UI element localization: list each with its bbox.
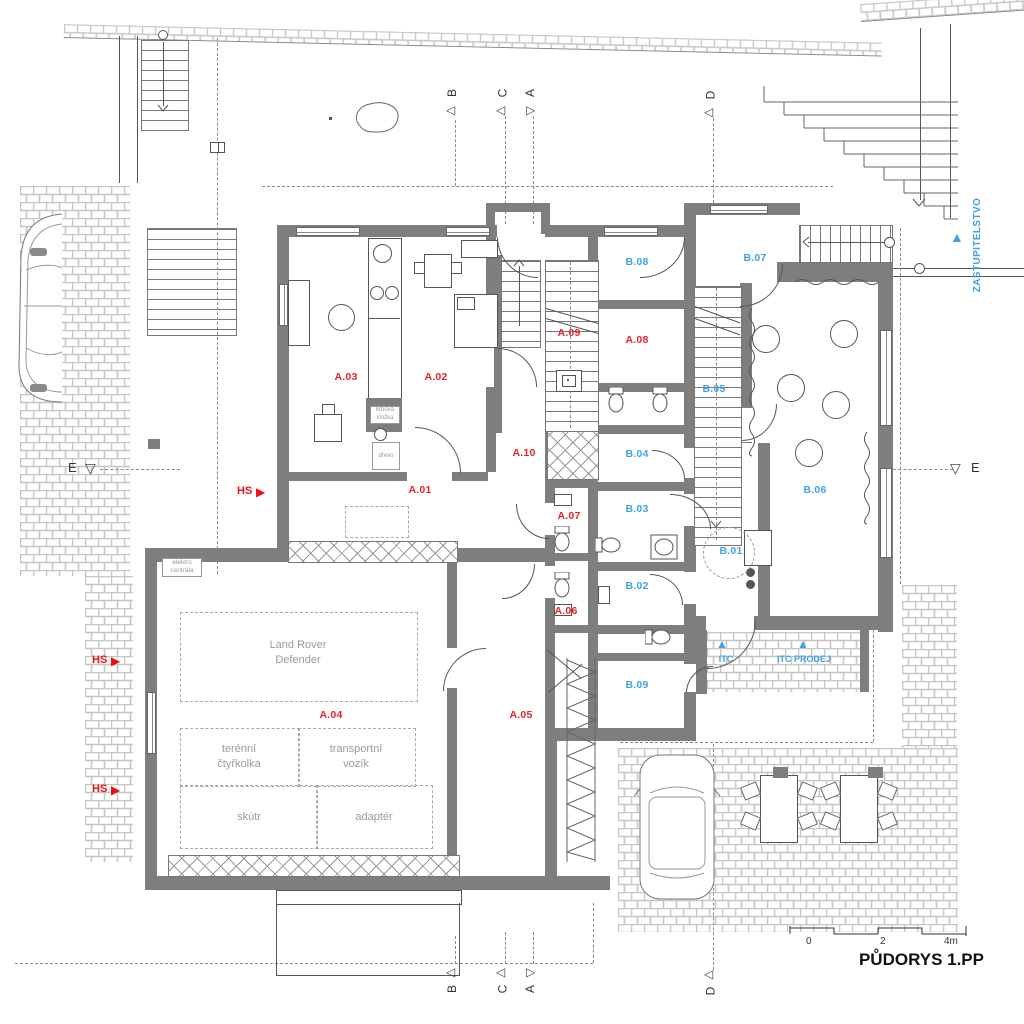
section-triangle-icon: ◁ xyxy=(496,104,505,116)
retaining-zigzag xyxy=(564,658,598,862)
room-label-a10: A.10 xyxy=(504,447,544,459)
toilet xyxy=(650,387,670,413)
room-label-b01: B.01 xyxy=(711,545,751,557)
window xyxy=(296,227,360,236)
window xyxy=(604,227,658,236)
section-triangle-icon: ▷ xyxy=(526,104,535,116)
staircase-b07 xyxy=(799,225,893,263)
car-side-parked xyxy=(12,208,64,406)
flue-circle xyxy=(374,428,387,441)
stair-newel-circle xyxy=(158,30,168,40)
ramp-line xyxy=(276,975,460,976)
paving-right-strip xyxy=(902,585,957,750)
arrow-down-icon xyxy=(710,520,722,528)
wall-segment xyxy=(277,472,407,481)
room-label-a02: A.02 xyxy=(416,371,456,383)
wall-segment xyxy=(452,472,488,481)
room-label-a06: A.06 xyxy=(546,605,586,617)
column-circle xyxy=(777,374,805,402)
section-label-e: E xyxy=(68,460,77,475)
post xyxy=(148,439,160,449)
window xyxy=(880,330,892,426)
section-label-a: A xyxy=(523,89,537,97)
shaft-hatch xyxy=(547,427,599,480)
wall-segment xyxy=(588,482,696,491)
toilet xyxy=(552,526,572,552)
direction-triangle-icon: ▲ xyxy=(797,638,809,650)
toilet xyxy=(552,572,572,598)
section-triangle-icon: ▽ xyxy=(85,461,96,475)
wall-segment xyxy=(145,876,610,890)
section-label-d: D xyxy=(703,987,717,996)
wall-hatch-row xyxy=(288,541,458,563)
section-label-c: C xyxy=(495,985,509,994)
itc-prodej-label: ITC PRODEJ xyxy=(764,654,844,664)
column-circle xyxy=(830,320,858,348)
roof-outline-line xyxy=(620,742,873,743)
hs-arrow-icon: ▶ xyxy=(111,784,120,796)
paving-street-band-ne xyxy=(860,0,1024,22)
hs-marker-label: HS xyxy=(237,485,252,497)
scale-2: 2 xyxy=(880,936,886,947)
kitchen-sink xyxy=(373,244,392,263)
dashed-equipment-box xyxy=(345,506,409,538)
door-arc xyxy=(502,564,535,599)
staircase-cascade xyxy=(762,86,960,222)
room-label-a01: A.01 xyxy=(400,484,440,496)
scale-4m: 4m xyxy=(944,936,958,947)
arrow-down-icon xyxy=(157,104,169,112)
radiator-wave xyxy=(862,432,872,527)
chair xyxy=(414,262,425,274)
column-circle xyxy=(795,439,823,467)
room-label-a08: A.08 xyxy=(617,334,657,346)
washbasin xyxy=(650,534,678,560)
roof-outline-line xyxy=(262,186,833,187)
section-line xyxy=(593,903,594,963)
section-label-d: D xyxy=(703,91,717,100)
post xyxy=(773,767,788,778)
section-label-c: C xyxy=(495,89,509,98)
itc-label: ITC xyxy=(708,654,744,664)
column-circle xyxy=(822,391,850,419)
toilet xyxy=(606,387,626,413)
section-label-e: E xyxy=(971,460,980,475)
chair xyxy=(451,262,462,274)
fireplace-label: krbovávložka xyxy=(370,406,400,424)
direction-triangle-icon: ▲ xyxy=(950,230,964,244)
drain-symbol xyxy=(210,142,225,153)
room-label-b06: B.06 xyxy=(795,484,835,496)
section-triangle-icon: ▽ xyxy=(950,461,961,475)
sofa xyxy=(288,280,310,346)
post xyxy=(868,767,883,778)
toilet xyxy=(645,627,671,647)
room-label-a09: A.09 xyxy=(549,327,589,339)
staircase-street xyxy=(141,40,189,131)
wall-segment xyxy=(860,620,869,692)
stair-direction-line xyxy=(808,242,884,243)
wall-segment xyxy=(545,480,598,488)
garage-door xyxy=(276,890,462,905)
hs-marker-label: HS xyxy=(92,654,107,666)
ramp-line xyxy=(459,903,460,975)
closet xyxy=(461,240,498,258)
room-label-b05: B.05 xyxy=(694,383,734,395)
toilet xyxy=(595,535,621,555)
hs-arrow-icon: ▶ xyxy=(111,655,120,667)
section-line-a xyxy=(533,932,534,964)
door-opening xyxy=(684,572,696,604)
hs-arrow-icon: ▶ xyxy=(256,486,265,498)
wall-segment xyxy=(588,562,696,571)
door-arc xyxy=(516,504,549,539)
section-line-b xyxy=(455,936,456,964)
boulder xyxy=(350,100,402,136)
scooter-label: skútr xyxy=(182,810,316,825)
staircase-a09-flight-down xyxy=(545,260,599,432)
window xyxy=(147,692,156,754)
room-label-a07: A.07 xyxy=(549,510,589,522)
room-label-a05: A.05 xyxy=(501,709,541,721)
hob-burner xyxy=(370,286,384,300)
wall-segment xyxy=(545,553,598,561)
door-arc xyxy=(498,348,537,387)
section-triangle-icon: ◁ xyxy=(496,966,505,978)
wall-segment xyxy=(545,625,598,633)
section-line xyxy=(15,963,593,964)
room-label-b02: B.02 xyxy=(617,580,657,592)
sink xyxy=(598,586,610,604)
adapter-label: adaptér xyxy=(318,810,430,825)
room-label-b04: B.04 xyxy=(617,448,657,460)
table xyxy=(314,414,342,442)
trailer-label: transportnívozík xyxy=(300,742,412,772)
stair-direction-line xyxy=(163,42,164,106)
section-label-a: A xyxy=(523,985,537,993)
door-arc xyxy=(740,264,783,307)
retaining-wall-line xyxy=(137,36,138,183)
drawing-title: PŮDORYS 1.PP xyxy=(788,950,984,970)
sink xyxy=(554,494,572,506)
section-triangle-icon: ▷ xyxy=(526,966,535,978)
table xyxy=(840,775,878,843)
stair-walk-line xyxy=(570,262,571,428)
room-label-b07: B.07 xyxy=(735,252,775,264)
window xyxy=(710,205,768,214)
wall-segment xyxy=(447,688,457,876)
section-line-d xyxy=(713,118,714,203)
section-triangle-icon: ◁ xyxy=(446,966,455,978)
door-arc xyxy=(415,427,461,473)
wall-segment xyxy=(588,383,696,392)
counter-line xyxy=(368,318,400,319)
window xyxy=(446,227,490,236)
wood-label: dřevo xyxy=(372,442,400,470)
vehicle-label: Land RoverDefender xyxy=(208,638,388,668)
section-triangle-icon: ◁ xyxy=(704,106,713,118)
section-label-b: B xyxy=(445,985,459,993)
room-label-a03: A.03 xyxy=(326,371,366,383)
hook-dot xyxy=(746,580,755,589)
room-label-a04: A.04 xyxy=(311,709,351,721)
hob-burner xyxy=(385,286,399,300)
stair-direction-line xyxy=(519,266,520,326)
wall-segment xyxy=(277,225,289,477)
zastupitelstvo-label: ZASTUPITELSTVO xyxy=(967,190,981,300)
section-label-b: B xyxy=(445,89,459,97)
section-line-e xyxy=(893,469,953,470)
site-dot xyxy=(329,117,332,120)
section-line xyxy=(217,38,218,574)
car-top-view xyxy=(634,751,722,903)
dumbwaiter-shaft xyxy=(556,370,582,392)
section-triangle-icon: ◁ xyxy=(446,104,455,116)
window xyxy=(880,468,892,558)
section-line-b xyxy=(455,120,456,186)
room-label-b09: B.09 xyxy=(617,679,657,691)
desk xyxy=(424,254,452,288)
room-label-b03: B.03 xyxy=(617,503,657,515)
electro-box: elektrocentrála xyxy=(162,558,202,577)
radiator-wave xyxy=(795,277,881,287)
hs-marker-label: HS xyxy=(92,783,107,795)
round-table xyxy=(328,304,355,331)
quad-label: terénníčtyřkolka xyxy=(182,742,296,772)
wall-segment xyxy=(545,740,557,876)
wall-segment xyxy=(596,653,696,661)
arrow-left-icon xyxy=(802,236,810,248)
section-line-c xyxy=(505,932,506,964)
wall-hatch-row xyxy=(168,855,460,877)
section-triangle-icon: ◁ xyxy=(704,968,713,980)
floor-plan: krbovávložka dřevo elektrocentrála Land … xyxy=(0,0,1024,1024)
stair-newel-circle xyxy=(914,263,925,274)
pillow xyxy=(457,297,475,310)
roof-outline-line xyxy=(873,620,874,742)
direction-triangle-icon: ▲ xyxy=(716,638,728,650)
radiator-wave xyxy=(747,308,757,458)
room-label-b08: B.08 xyxy=(617,256,657,268)
ramp-line xyxy=(276,903,277,975)
chair xyxy=(322,404,335,415)
wall-segment xyxy=(455,548,547,562)
section-line-e xyxy=(100,469,180,470)
wall-segment xyxy=(447,562,457,648)
retaining-wall-line xyxy=(119,36,120,183)
scale-0: 0 xyxy=(806,936,812,947)
roof-outline-line xyxy=(900,228,901,584)
staircase-garden xyxy=(147,228,237,336)
site-line xyxy=(893,276,1024,277)
table xyxy=(760,775,798,843)
window xyxy=(279,284,288,326)
stair-newel-circle xyxy=(884,237,895,248)
wall-segment xyxy=(588,300,696,309)
site-line xyxy=(893,268,1024,269)
paving-left-lower xyxy=(85,576,133,862)
